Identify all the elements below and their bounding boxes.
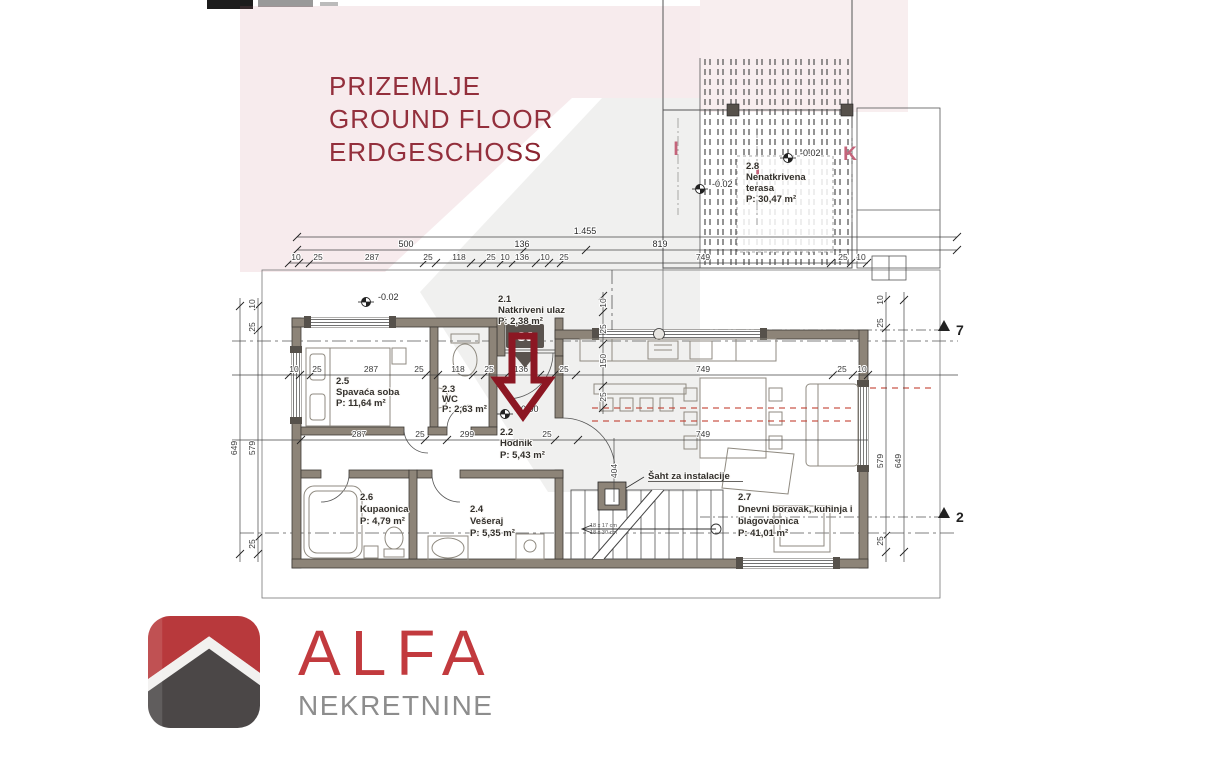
room-id: 2.2 [500,427,513,438]
logo-brand: ALFA [298,622,495,684]
dim: 287 [365,252,379,262]
room-name: Hodnik [500,438,533,449]
room-id: 2.4 [470,504,484,515]
terrace-post [727,104,739,116]
dim: 10 [247,299,257,309]
stair-note-1: 18 x 17 cm [590,523,617,529]
dining-table [700,378,766,458]
logo-icon [148,616,260,728]
right-dimensions: 579 649 10 25 25 [875,292,908,562]
bath-toilet [384,549,404,557]
stair-note-2: 18 x 30 cm [590,530,617,536]
dim: 25 [542,429,552,439]
dim: 299 [460,429,474,439]
dim: 25 [486,252,496,262]
terrace-elevation: -0.02 [800,148,821,158]
room-name: Kupaonica [360,504,409,515]
dim: 649 [893,454,903,468]
grid-axis-i: I [673,139,678,160]
dim: 25 [875,536,885,546]
dim: 287 [352,429,366,439]
left-dimensions: 649 579 10 25 25 [229,298,262,562]
dim: 579 [247,441,257,455]
room-name: Dnevni boravak, kuhinja i [738,504,853,515]
room-id: 2.6 [360,492,373,503]
dim: 749 [696,364,710,374]
room-name-terrace: Nenatkrivena [746,172,806,183]
dim-total: 1.455 [574,226,597,236]
column [654,329,665,340]
room-name2: blagovaonica [738,516,799,527]
room-name: Vešeraj [470,516,503,527]
dim: 10 [291,252,301,262]
dim: 10 [500,252,510,262]
dim: 25 [875,318,885,328]
dim: 136 [514,239,529,249]
dim: 25 [484,364,494,374]
dim: 25 [837,364,847,374]
dim: 819 [652,239,667,249]
room-id: 2.7 [738,492,751,503]
terrace-post [841,104,853,116]
dim: 136 [515,252,529,262]
dim: 579 [875,454,885,468]
dim: 25 [559,252,569,262]
rug [722,448,794,494]
floor-plan-page: PRIZEMLJE GROUND FLOOR ERDGESCHOSS [0,0,1219,768]
dim: 25 [598,392,608,402]
section-7: 7 [956,322,964,338]
dim: 287 [364,364,378,374]
dim: 10 [875,295,885,305]
dim: 25 [415,429,425,439]
agency-logo: ALFA NEKRETNINE [148,616,495,728]
dim: 10 [857,364,867,374]
dim: 118 [452,252,466,262]
room-area: P: 2,38 m² [498,316,543,327]
dim: 25 [598,324,608,334]
room-area-terrace: P: 30,47 m² [746,194,796,205]
section-2: 2 [956,509,964,525]
dim: 10 [540,252,550,262]
dim: 25 [559,364,569,374]
dim: 10 [289,364,299,374]
laundry-sink [428,536,468,560]
room-name2-terrace: terasa [746,183,775,194]
shaft-label: Šaht za instalacije [648,470,730,482]
dim: 25 [313,252,323,262]
dim: 10 [598,298,608,308]
sofa [806,384,858,466]
dim: 649 [229,441,239,455]
bathtub [304,486,362,558]
room-area: P: 11,64 m² [336,398,386,409]
dim-stair: 404 [609,464,619,478]
terrace-elevation: -0.02 [712,179,733,189]
dim: 25 [414,364,424,374]
logo-tagline: NEKRETNINE [298,690,495,722]
room-area: P: 2,63 m² [442,404,487,415]
dim: 500 [398,239,413,249]
room-id: 2.1 [498,294,512,305]
annex-outline [857,108,940,280]
room-name: Spavaća soba [336,387,400,398]
dim: 749 [696,252,710,262]
room-area: P: 41,01 m² [738,528,788,539]
dim: 150 [598,354,608,368]
dim: 10 [856,252,866,262]
dim: 25 [247,322,257,332]
dim: 25 [423,252,433,262]
washing-machine [516,534,544,559]
room-area: P: 5,43 m² [500,450,545,461]
dim: 749 [696,429,710,439]
dim: 25 [838,252,848,262]
room-name: Natkriveni ulaz [498,305,565,316]
room-id: 2.5 [336,376,350,387]
dim: 25 [247,539,257,549]
grid-axis-k: K [843,144,857,165]
room-area: P: 5,35 m² [470,528,515,539]
room-id-terrace: 2.8 [746,161,759,172]
dim: 118 [451,364,465,374]
room-area: P: 4,79 m² [360,516,405,527]
dim: 25 [312,364,322,374]
elevation-entry: -0.02 [378,292,399,302]
